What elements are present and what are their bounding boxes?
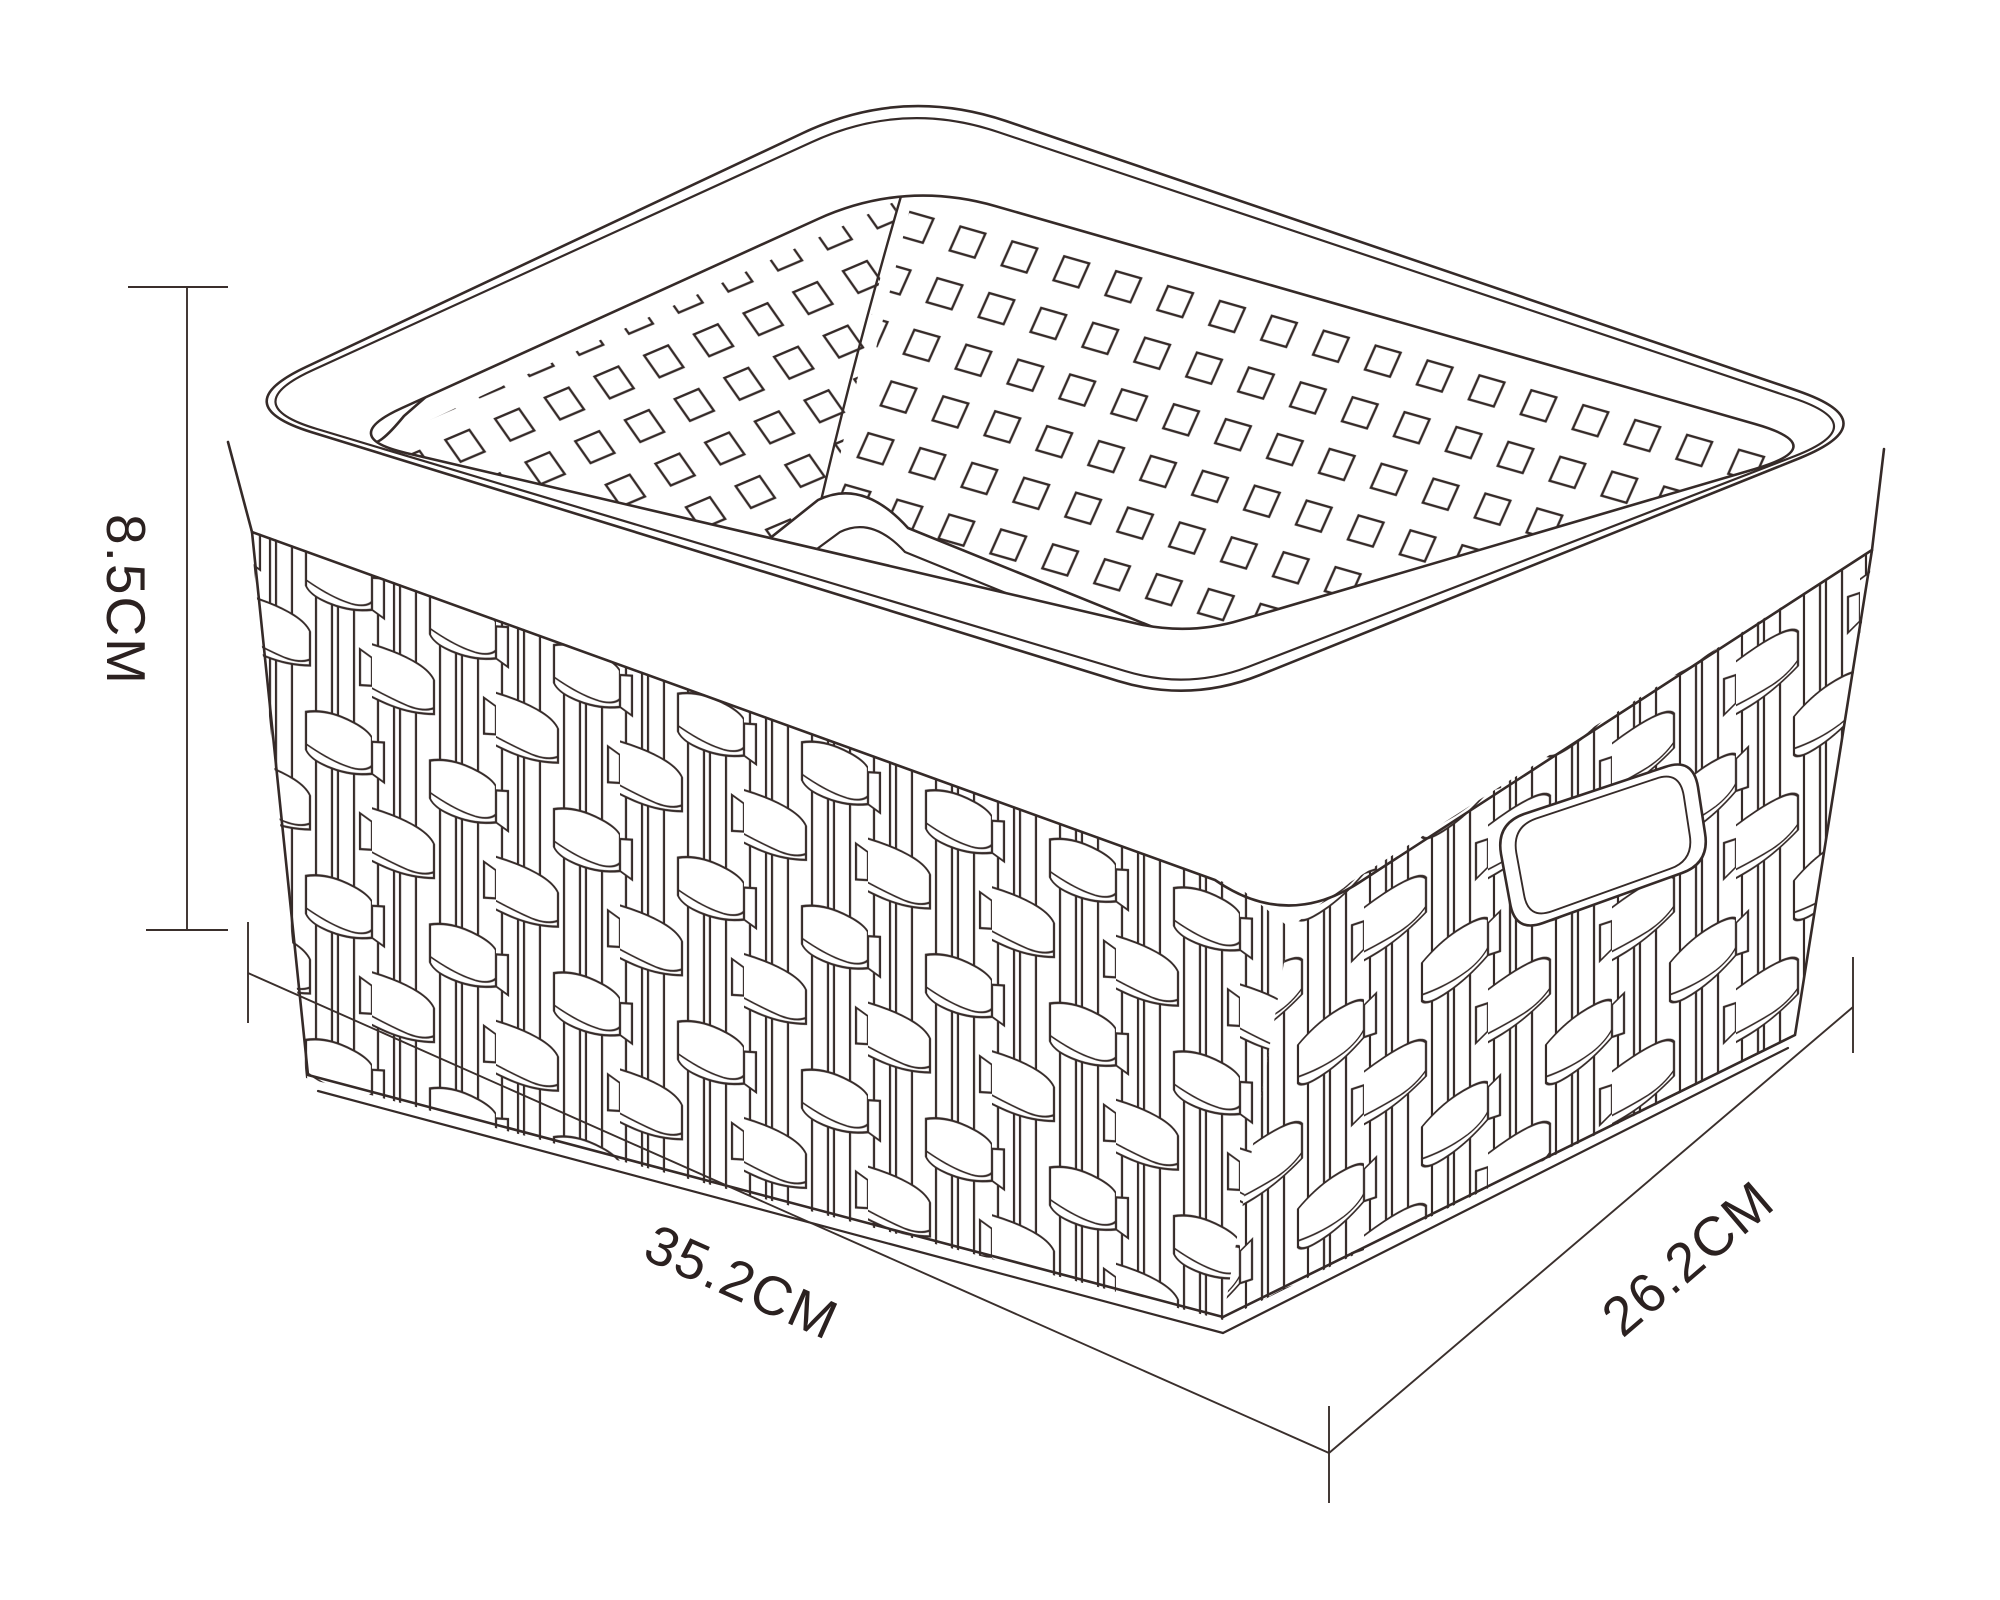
drawing-stage: 8.5CM 35.2CM 26.2CM — [0, 0, 2000, 1600]
basket-drawing — [228, 106, 1884, 1333]
depth-label: 26.2CM — [1590, 1168, 1786, 1348]
width-label: 35.2CM — [636, 1212, 848, 1352]
figure-canvas: 8.5CM 35.2CM 26.2CM — [0, 0, 2000, 1600]
height-label: 8.5CM — [95, 514, 157, 686]
